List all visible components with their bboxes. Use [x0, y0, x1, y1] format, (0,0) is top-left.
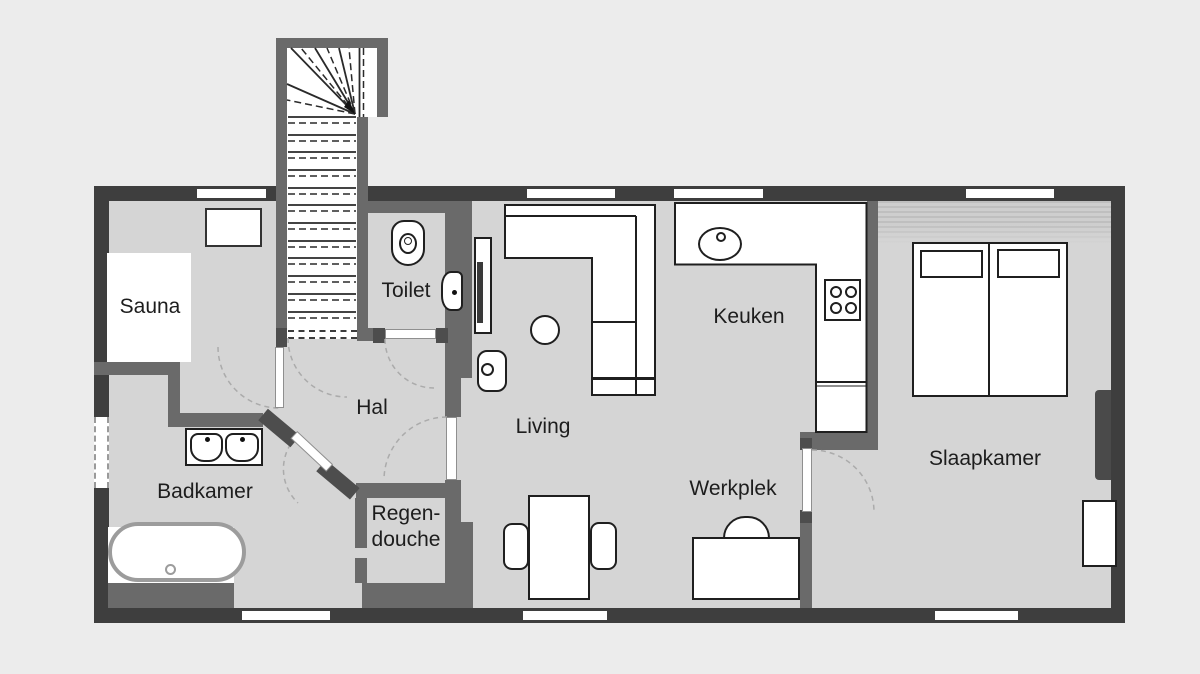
stair-bottom-edge: [288, 330, 357, 339]
toilet-flush-button: [404, 237, 412, 245]
bedroom-door-leaf: [802, 448, 812, 512]
stairwell-wall-left: [276, 38, 287, 328]
hal-east-wall: [445, 378, 461, 417]
dining-chair: [503, 523, 529, 570]
regendouche-line2: douche: [372, 528, 441, 551]
bathtub: [108, 522, 246, 582]
wardrobe: [878, 201, 1111, 243]
shower-wall-left: [355, 498, 367, 548]
pillow: [920, 250, 983, 278]
room-label-werkplek: Werkplek: [689, 476, 776, 502]
room-label-keuken: Keuken: [713, 304, 784, 330]
shower-wall-top: [356, 483, 448, 498]
bath-plinth: [108, 583, 234, 608]
tv: [477, 262, 483, 323]
sink-tap: [716, 232, 726, 242]
shower-wall-bottom: [362, 583, 448, 608]
room-label-living: Living: [516, 414, 571, 440]
window: [935, 608, 1018, 623]
window: [242, 608, 330, 623]
burner: [830, 302, 842, 314]
desk: [692, 537, 800, 600]
room-label-regendouche: Regen- douche: [372, 501, 441, 553]
double-sink-unit: [185, 428, 263, 466]
cooktop: [824, 279, 861, 321]
kitchen-bottom-wall: [801, 432, 878, 450]
room-label-slaapkamer: Slaapkamer: [929, 446, 1041, 472]
regendouche-line1: Regen-: [372, 502, 441, 525]
utility-block: [1095, 390, 1111, 480]
window: [966, 186, 1054, 201]
stairwell-wall-right-upper: [377, 38, 388, 117]
window: [197, 186, 266, 201]
shower-wall-left: [355, 558, 367, 583]
dining-table: [528, 495, 590, 600]
stair-winder-area: [287, 48, 377, 117]
cabinet: [205, 208, 262, 247]
room-label-badkamer: Badkamer: [157, 479, 253, 505]
burner: [830, 286, 842, 298]
burner: [845, 302, 857, 314]
nightstand: [1082, 500, 1117, 567]
burner: [845, 286, 857, 298]
kitchen-bedroom-wall: [867, 201, 878, 433]
room-label-toilet: Toilet: [381, 278, 430, 304]
window: [523, 608, 607, 623]
werkplek-wall: [800, 512, 812, 608]
pillow: [997, 249, 1060, 278]
door-post: [436, 328, 448, 343]
sink-tap: [240, 437, 245, 442]
shower-wall-right: [445, 522, 473, 608]
toilet-head-wall: [357, 201, 445, 213]
stairwell-wall-right-lower: [357, 117, 368, 328]
door-post: [276, 328, 287, 347]
sauna-room-wall: [168, 362, 180, 427]
stair-flight-area: [287, 117, 357, 338]
basin-tap: [452, 290, 457, 295]
stairwell-wall-cap: [276, 38, 388, 48]
door-post: [373, 328, 385, 343]
room-label-hal: Hal: [356, 395, 388, 421]
bathtub-drain: [165, 564, 176, 575]
dining-chair: [590, 522, 617, 570]
badkamer-wall: [180, 413, 263, 427]
sink-tap: [205, 437, 210, 442]
toilet-door-leaf: [385, 329, 436, 339]
outer-wall-left: [94, 186, 109, 623]
floor-plan: Sauna Toilet Hal Badkamer Regen- douche …: [0, 0, 1200, 674]
room-label-sauna: Sauna: [120, 294, 181, 320]
hal-living-door-leaf: [446, 417, 457, 480]
side-table: [530, 315, 560, 345]
armchair-cushion: [481, 363, 494, 376]
window: [674, 186, 763, 201]
sauna-room-door-leaf: [275, 347, 284, 408]
window: [527, 186, 615, 201]
bed-divider: [988, 244, 990, 395]
window-dashed: [94, 417, 109, 488]
